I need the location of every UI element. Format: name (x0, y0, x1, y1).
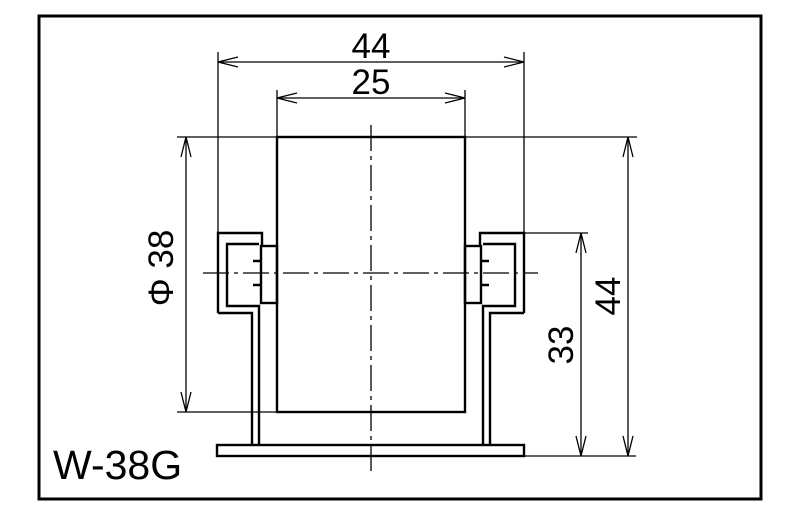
right-bracket (465, 233, 524, 446)
dimension-label-overall-height: 44 (589, 277, 628, 316)
dimension-wheel-diameter-38: Φ 38 (142, 137, 277, 412)
dimension-label-top-width: 44 (352, 27, 391, 66)
right-bracket-step-and-web (490, 313, 524, 446)
model-number-label: W-38G (53, 442, 182, 488)
technical-drawing-canvas: 44 25 Φ 38 33 (0, 0, 800, 521)
dimension-label-wheel-width: 25 (352, 63, 391, 102)
wheel-hub-boss-right (465, 246, 481, 303)
left-bracket-step-and-web (218, 313, 252, 446)
dimension-label-wheel-diameter: Φ 38 (142, 230, 181, 307)
right-bracket-inner-contour (483, 244, 515, 446)
wheel-hub-boss-left (261, 246, 277, 303)
left-bracket-inner-contour (227, 244, 259, 446)
dimension-label-frame-height: 33 (542, 326, 581, 365)
dimension-frame-height-33: 33 (524, 233, 588, 456)
drawing-svg: 44 25 Φ 38 33 (0, 0, 800, 521)
left-bracket (218, 233, 277, 446)
centerlines (203, 125, 538, 471)
